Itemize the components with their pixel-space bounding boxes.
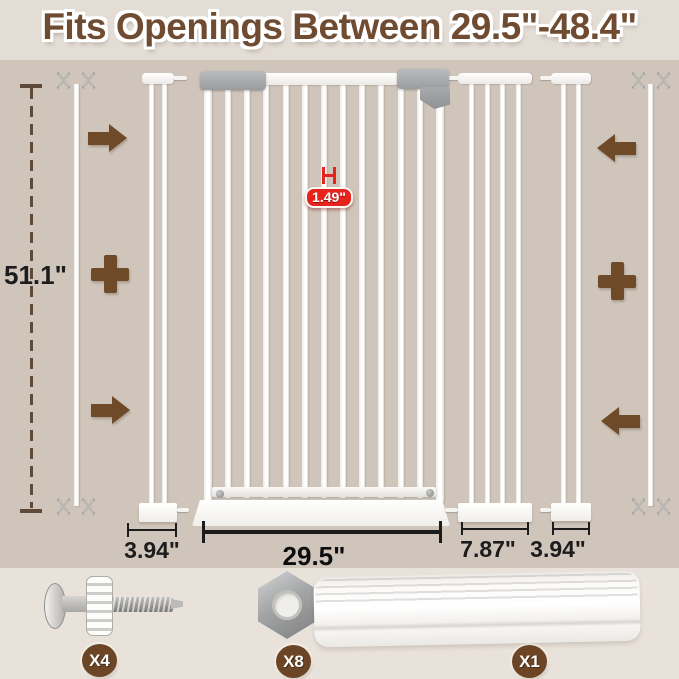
width-label-large-extension: 7.87"	[448, 536, 528, 563]
wing-knob-icon	[632, 498, 645, 515]
gate-bar	[244, 84, 250, 498]
product-dimension-diagram: Fits Openings Between 29.5"-48.4" 51.1" …	[0, 0, 679, 679]
left-extension-base-rod	[177, 508, 189, 512]
wing-knob-icon	[82, 498, 95, 515]
gate-bar	[561, 83, 566, 503]
wall-protector-icon	[313, 571, 640, 648]
width-dimension-large-extension	[461, 522, 529, 535]
left-extension-top-rail	[142, 73, 174, 84]
gate-bar	[340, 84, 346, 498]
height-label: 51.1"	[4, 260, 67, 291]
wing-knob-icon	[57, 498, 70, 515]
spindle-screw-wheel-icon	[86, 576, 113, 636]
left-tension-rod	[74, 84, 79, 506]
width-dimension-gate	[202, 521, 442, 543]
gate-bar	[149, 83, 154, 504]
gate-right-post	[436, 78, 444, 502]
gate-bar	[516, 83, 521, 504]
gate-latch-handle	[397, 69, 449, 89]
screw-knobs-icon	[57, 72, 95, 89]
large-extension-base	[458, 503, 532, 522]
right-tension-rod	[648, 84, 653, 506]
width-label-right-extension: 3.94"	[518, 536, 598, 563]
wing-knob-icon	[632, 72, 645, 89]
right-extension-base	[551, 503, 591, 521]
spindle-screw-tip-icon	[171, 599, 183, 609]
count-badge-screws: X4	[82, 644, 117, 677]
gate-bottom-crossbar	[212, 487, 436, 497]
bar-gap-badge: 1.49"	[305, 187, 353, 208]
gate-bars	[212, 84, 436, 498]
bar-gap-marker-icon	[322, 167, 336, 184]
wing-knob-icon	[657, 498, 670, 515]
height-dimension-dashed-line	[30, 88, 33, 508]
large-extension-top-rail	[458, 73, 532, 84]
gate-bar	[576, 83, 581, 503]
add-extension-plus-icon	[91, 255, 129, 293]
add-extension-plus-icon	[598, 262, 636, 300]
wing-knob-icon	[57, 72, 70, 89]
screw-knobs-icon	[632, 498, 670, 515]
screw-knobs-icon	[632, 72, 670, 89]
right-extension-bars	[551, 83, 591, 503]
wing-knob-icon	[82, 72, 95, 89]
gate-bar	[398, 84, 404, 498]
gate-bar	[302, 84, 308, 498]
gate-hinge-cap	[200, 71, 266, 90]
count-badge-nuts: X8	[276, 645, 311, 678]
spindle-screw-rod-icon	[109, 597, 173, 612]
wing-knob-icon	[657, 72, 670, 89]
expand-arrow-left-icon	[597, 134, 636, 162]
screw-knobs-icon	[57, 498, 95, 515]
screw-icon	[216, 490, 224, 498]
gate-bar	[500, 83, 505, 504]
gate-left-post	[204, 78, 212, 502]
right-extension-base-rod	[540, 508, 551, 512]
gate-bar	[283, 84, 289, 498]
height-dimension-bottom-cap	[20, 509, 42, 513]
gate-bar	[225, 84, 231, 498]
width-label-left-extension: 3.94"	[112, 537, 192, 564]
expand-arrow-left-icon	[601, 407, 640, 435]
expand-arrow-right-icon	[91, 396, 130, 424]
width-dimension-right-extension	[552, 522, 590, 535]
large-extension-bars	[458, 83, 532, 504]
gate-bar	[485, 83, 490, 504]
left-extension-bars	[142, 83, 174, 504]
gate-bar	[378, 84, 384, 498]
left-extension-connector-rod	[173, 76, 187, 80]
gate-bar	[263, 84, 269, 498]
left-extension-base	[139, 503, 177, 522]
width-dimension-left-extension	[127, 523, 177, 537]
hex-nut-hole-icon	[272, 590, 302, 620]
right-extension-top-rail	[551, 73, 591, 84]
gate-bar	[359, 84, 365, 498]
screw-icon	[426, 489, 434, 497]
page-title: Fits Openings Between 29.5"-48.4"	[0, 6, 679, 48]
expand-arrow-right-icon	[88, 124, 127, 152]
header-band: Fits Openings Between 29.5"-48.4"	[0, 0, 679, 60]
hardware-band: X4 X8 X1	[0, 568, 679, 679]
gate-bar	[162, 83, 167, 504]
gate-bar	[417, 84, 423, 498]
count-badge-protector: X1	[512, 645, 547, 678]
large-extension-base-rod	[445, 508, 458, 512]
gate-bar	[469, 83, 474, 504]
gate-bar	[321, 84, 327, 498]
